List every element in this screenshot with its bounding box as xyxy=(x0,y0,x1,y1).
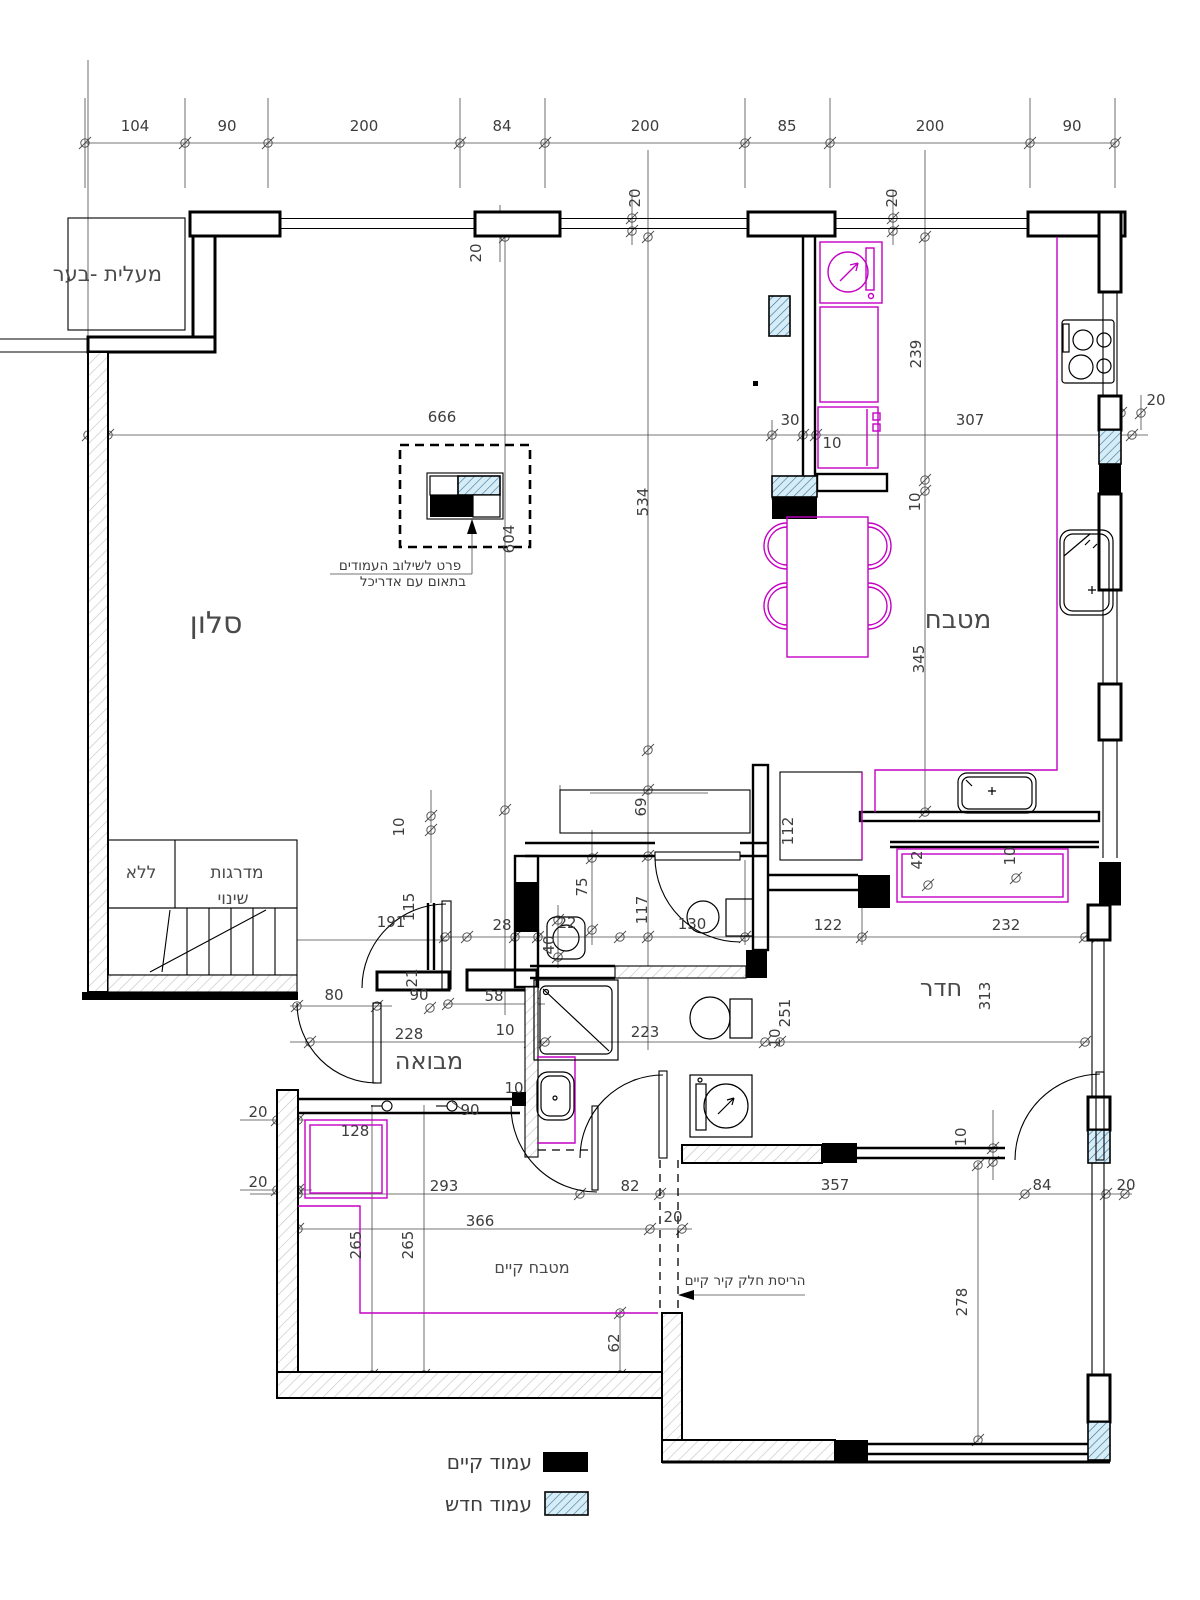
dim-label: 69 xyxy=(632,797,650,816)
floor-plan-drawing: פרט לשילוב העמודים בתאום עם אדריכל הריסת… xyxy=(0,0,1200,1600)
niche-69 xyxy=(560,790,750,833)
leader-arrow-icon xyxy=(467,519,477,534)
dim-label: 20 xyxy=(883,188,901,207)
dim-label: 40 xyxy=(540,935,558,954)
dim-label: 265 xyxy=(347,1231,365,1260)
dim-label: 115 xyxy=(400,893,418,922)
legend-existing-swatch xyxy=(543,1452,588,1472)
demolition-arrow-icon xyxy=(678,1290,694,1300)
demolition-note: הריסת חלק קיר קיים xyxy=(685,1273,806,1289)
dim-label: 239 xyxy=(907,340,925,369)
detail-callout: פרט לשילוב העמודים בתאום עם אדריכל xyxy=(330,445,530,590)
dim-label: 80 xyxy=(324,986,343,1004)
dim-label: 10 xyxy=(906,492,924,511)
bath-sink xyxy=(537,1072,574,1120)
dim-label: 307 xyxy=(956,411,985,429)
hook xyxy=(447,1101,457,1111)
dim-label: 200 xyxy=(350,117,379,135)
legend-existing-label: עמוד קיים xyxy=(447,1450,532,1474)
dim-label: 104 xyxy=(121,117,150,135)
dim-label: 10 xyxy=(766,1028,784,1047)
dim-label: 75 xyxy=(573,877,591,896)
dim-label: 10 xyxy=(504,1079,523,1097)
closet-112 xyxy=(780,772,862,860)
dim-label: 22 xyxy=(557,914,576,932)
dim-label: 366 xyxy=(466,1212,495,1230)
window-right-3 xyxy=(1103,740,1117,858)
dim-label: 232 xyxy=(992,916,1021,934)
room-label: ללא xyxy=(126,863,157,883)
detail-note-line1: פרט לשילוב העמודים xyxy=(339,558,461,574)
dim-label: 20 xyxy=(663,1208,682,1226)
room-label: חדר xyxy=(920,974,962,1002)
dim-label: 21 xyxy=(403,968,421,987)
dim-label: 10 xyxy=(822,434,841,452)
dim-label: 90 xyxy=(409,986,428,1004)
room-labels: סלוןמטבחחדרמבואהמטבח קייםמעלית -בערמדרגו… xyxy=(53,262,992,1277)
floor-plan-page: פרט לשילוב העמודים בתאום עם אדריכל הריסת… xyxy=(0,0,1200,1600)
demolition-annotation: הריסת חלק קיר קיים xyxy=(660,1160,805,1313)
dim-label: 313 xyxy=(976,982,994,1011)
gas-stove xyxy=(1062,320,1114,383)
dim-label: 200 xyxy=(916,117,945,135)
dim-label: 122 xyxy=(814,916,843,934)
dim-label: 90 xyxy=(1062,117,1081,135)
doors xyxy=(297,852,1104,1192)
dim-label: 90 xyxy=(217,117,236,135)
dim-label: 345 xyxy=(910,645,928,674)
dim-label: 20 xyxy=(626,188,644,207)
dim-label: 20 xyxy=(1146,391,1165,409)
dim-label: 357 xyxy=(821,1176,850,1194)
room-label: סלון xyxy=(190,606,243,641)
dim-label: 20 xyxy=(467,243,485,262)
dim-label: 112 xyxy=(779,817,797,846)
grid-ticks xyxy=(79,137,1147,1446)
legend: עמוד קיים עמוד חדש xyxy=(445,1450,588,1516)
dim-label: 30 xyxy=(780,411,799,429)
room-label: מטבח xyxy=(925,605,992,635)
room-label: מעלית -בער xyxy=(53,262,162,286)
dim-label: 128 xyxy=(341,1122,370,1140)
washing-machine xyxy=(690,1075,752,1137)
hook xyxy=(382,1101,392,1111)
dimension-lines xyxy=(85,60,1148,1442)
dim-label: 10 xyxy=(1001,846,1019,865)
dim-label: 278 xyxy=(953,1288,971,1317)
dim-label: 228 xyxy=(395,1025,424,1043)
dim-label: 293 xyxy=(430,1177,459,1195)
window-right-2 xyxy=(1103,590,1117,684)
room-label: מבואה xyxy=(395,1047,463,1075)
shower xyxy=(534,980,618,1060)
dim-label: 85 xyxy=(777,117,796,135)
window-top xyxy=(280,219,1028,229)
cabinet xyxy=(820,307,878,402)
dim-label: 10 xyxy=(952,1127,970,1146)
stairs xyxy=(82,840,298,1000)
legend-new-swatch xyxy=(545,1492,588,1515)
dim-label: 200 xyxy=(631,117,660,135)
dim-label: 265 xyxy=(399,1231,417,1260)
dim-label: 117 xyxy=(633,896,651,925)
dim-label: 90 xyxy=(460,1101,479,1119)
island-sink xyxy=(958,773,1036,813)
detail-note-line2: בתאום עם אדריכל xyxy=(360,574,466,590)
window-right-4 xyxy=(1092,940,1104,1097)
dim-label: 251 xyxy=(776,999,794,1028)
room-label: מטבח קיים xyxy=(494,1258,569,1277)
legend-new-label: עמוד חדש xyxy=(445,1492,532,1516)
dim-label: 20 xyxy=(1116,1176,1135,1194)
kitchen-counter xyxy=(875,237,1057,812)
dim-label: 62 xyxy=(605,1333,623,1352)
dim-label: 20 xyxy=(248,1173,267,1191)
dim-label: 82 xyxy=(620,1177,639,1195)
dim-label: 604 xyxy=(500,525,518,554)
dining-table xyxy=(764,517,891,657)
room-label: שינוי xyxy=(217,889,248,909)
toilet-2 xyxy=(690,997,752,1039)
room-label: מדרגות xyxy=(210,863,263,883)
dim-label: 42 xyxy=(908,850,926,869)
dim-label: 666 xyxy=(428,408,457,426)
dim-label: 10 xyxy=(390,817,408,836)
dim-label: 84 xyxy=(492,117,511,135)
dim-label: 223 xyxy=(631,1023,660,1041)
door-arc-lobby xyxy=(511,1106,597,1192)
dim-label: 534 xyxy=(634,488,652,517)
dim-label: 20 xyxy=(248,1103,267,1121)
dim-label: 84 xyxy=(1032,1176,1051,1194)
dim-label: 28 xyxy=(492,916,511,934)
dim-label: 130 xyxy=(678,915,707,933)
dim-label: 58 xyxy=(484,987,503,1005)
dim-label: 10 xyxy=(495,1021,514,1039)
